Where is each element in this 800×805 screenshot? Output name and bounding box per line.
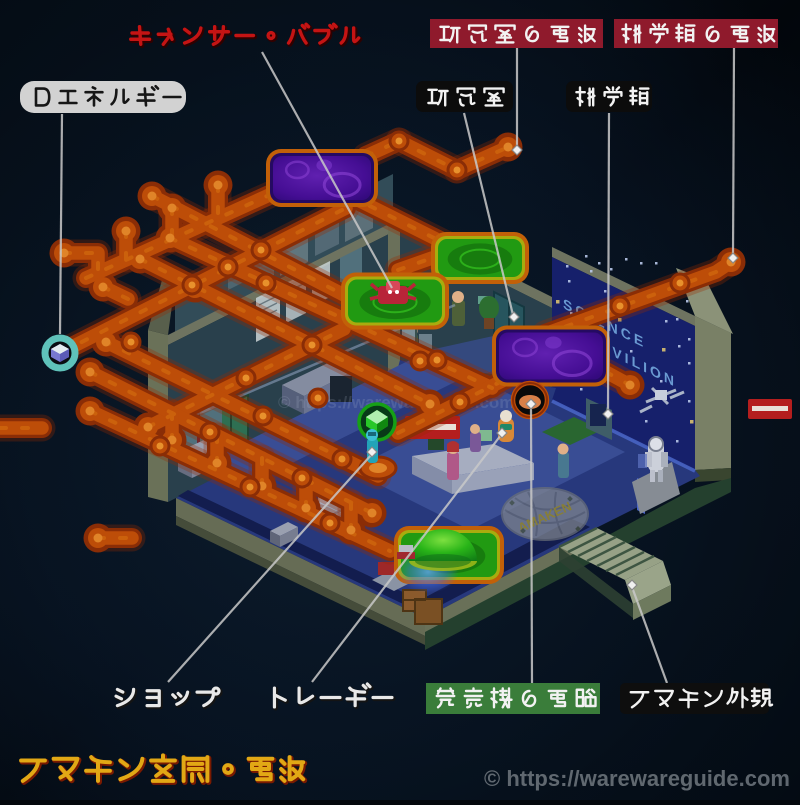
svg-text:© https://warewareguide.com: © https://warewareguide.com xyxy=(484,766,790,791)
